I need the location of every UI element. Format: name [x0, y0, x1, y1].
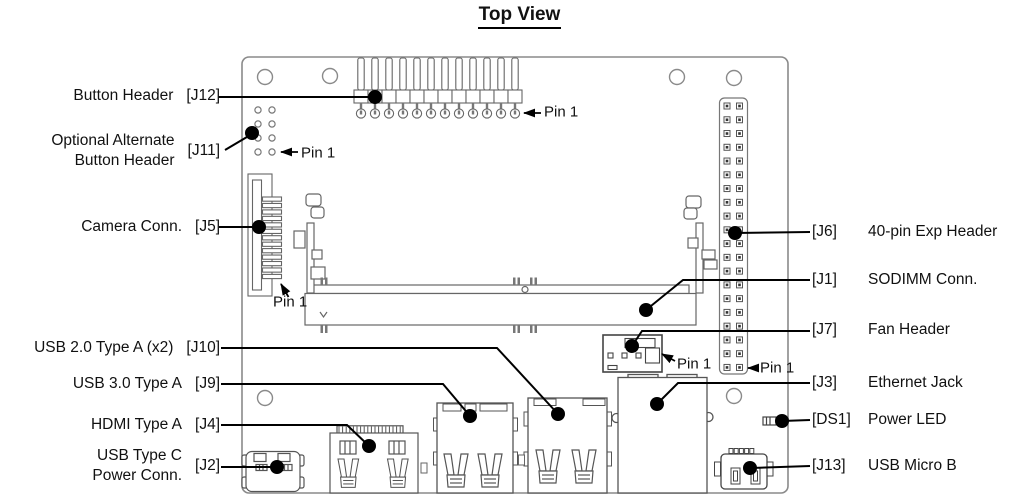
ref-j13: [J13]	[812, 457, 868, 475]
ref-ds1: [DS1]	[812, 411, 868, 429]
label-text: Ethernet Jack	[868, 374, 963, 392]
label-sodimm: [J1] SODIMM Conn.	[812, 271, 977, 289]
label-alt-button-header: Optional Alternate Button Header [J11]	[0, 131, 220, 171]
ref-j1: [J1]	[812, 271, 868, 289]
label-exp-header: [J6] 40-pin Exp Header	[812, 223, 997, 241]
ref-j10: [J10]	[186, 339, 220, 357]
usb2-j10	[524, 398, 612, 493]
label-power-led: [DS1] Power LED	[812, 411, 946, 429]
ref-j4: [J4]	[195, 416, 220, 434]
label-text: USB 2.0 Type A (x2)	[34, 338, 173, 358]
label-text: Power LED	[868, 411, 946, 429]
hdmi-j4	[330, 426, 418, 493]
label-text: USB 3.0 Type A	[73, 374, 182, 394]
pin1-label-j7: Pin 1	[677, 356, 711, 373]
ethernet-jack-j3	[612, 375, 713, 494]
label-text: SODIMM Conn.	[868, 271, 977, 289]
label-camera-conn: Camera Conn. [J5]	[0, 217, 220, 237]
ref-j7: [J7]	[812, 321, 868, 339]
label-button-header: Button Header [J12]	[0, 86, 220, 106]
label-usb-micro-b: [J13] USB Micro B	[812, 457, 957, 475]
ref-j3: [J3]	[812, 374, 868, 392]
label-text: Camera Conn.	[81, 217, 182, 237]
label-text: HDMI Type A	[91, 415, 182, 435]
ref-j2: [J2]	[195, 457, 220, 475]
ref-j12: [J12]	[186, 87, 220, 105]
label-fan-header: [J7] Fan Header	[812, 321, 950, 339]
label-usb3: USB 3.0 Type A [J9]	[0, 374, 220, 394]
label-text: Optional Alternate Button Header	[51, 131, 174, 171]
page-title: Top View	[447, 4, 592, 29]
board-top-view-diagram: Top View Button Header [J12] Optional Al…	[0, 0, 1024, 498]
label-ethernet: [J3] Ethernet Jack	[812, 374, 963, 392]
pin1-label-j6: Pin 1	[760, 360, 794, 377]
label-usb2: USB 2.0 Type A (x2) [J10]	[0, 338, 220, 358]
pin1-label-j12: Pin 1	[544, 104, 578, 121]
label-text: USB Micro B	[868, 457, 957, 475]
ref-j9: [J9]	[195, 375, 220, 393]
label-usb-type-c: USB Type C Power Conn. [J2]	[0, 446, 220, 486]
label-text: Button Header	[73, 86, 173, 106]
pin1-label-j5: Pin 1	[273, 294, 307, 311]
ref-j6: [J6]	[812, 223, 868, 241]
ref-j5: [J5]	[195, 218, 220, 236]
label-text: USB Type C Power Conn.	[92, 446, 182, 486]
label-text: Fan Header	[868, 321, 950, 339]
label-hdmi: HDMI Type A [J4]	[0, 415, 220, 435]
label-text: 40-pin Exp Header	[868, 223, 997, 241]
pin1-label-j11: Pin 1	[301, 145, 335, 162]
ref-j11: [J11]	[188, 142, 220, 160]
